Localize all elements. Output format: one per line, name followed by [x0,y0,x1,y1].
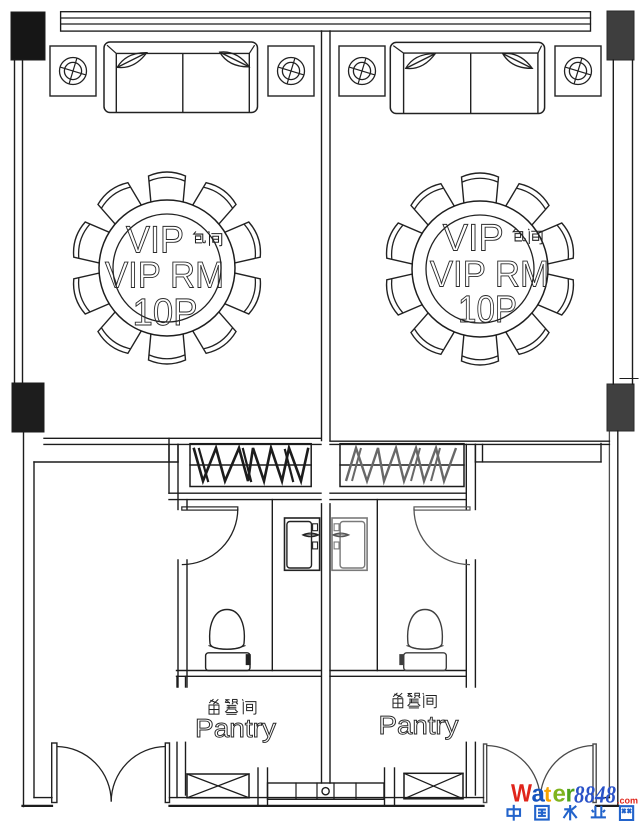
svg-text:10P: 10P [133,292,198,334]
svg-text:10P: 10P [458,289,517,331]
svg-text:VIP RM: VIP RM [105,255,224,296]
svg-text:Pantry: Pantry [379,710,459,740]
svg-text:8848: 8848 [574,782,616,809]
svg-text:t: t [544,782,552,807]
svg-text:e: e [553,781,566,808]
svg-text:Pantry: Pantry [195,713,276,743]
svg-text:W: W [511,780,532,808]
svg-text:.com: .com [617,796,638,806]
